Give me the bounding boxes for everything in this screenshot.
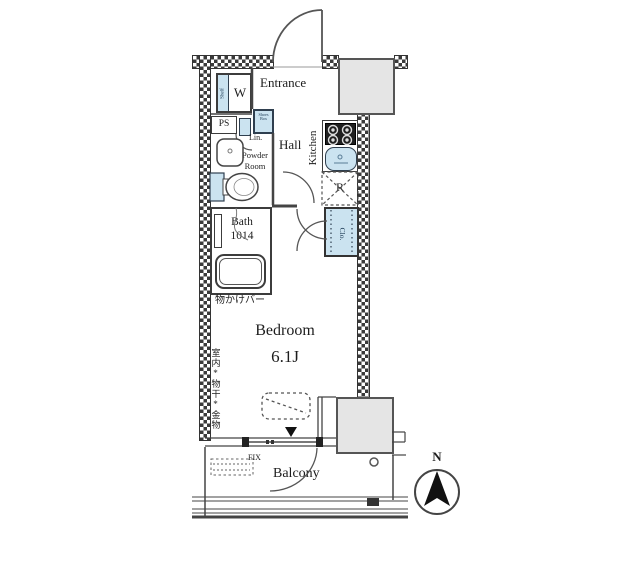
window-marker-triangle	[285, 427, 297, 437]
stove-burners	[329, 126, 352, 145]
closet-rail-lines	[331, 210, 352, 255]
balcony-equipment-outline	[211, 459, 253, 475]
powder-door-arc	[283, 172, 314, 203]
balcony-wall-cap	[367, 498, 379, 506]
shower-hose-line	[234, 208, 248, 240]
bedroom-window	[205, 437, 336, 447]
toilet	[210, 173, 258, 201]
balcony-door-arc	[270, 448, 317, 491]
compass-icon	[415, 470, 459, 514]
washbasin	[217, 139, 243, 166]
balcony-drain	[370, 458, 378, 466]
plan-linework	[0, 0, 640, 569]
drying-hardware-outline	[262, 393, 310, 419]
refrigerator-space	[322, 172, 358, 205]
bedroom-folding-door	[297, 209, 327, 251]
sink-details	[334, 155, 348, 163]
entrance-door-arc	[273, 10, 322, 67]
floor-plan: Shelf W PS Shoes Box Lin. Entrance Hall …	[0, 0, 640, 569]
interior-walls	[211, 68, 336, 447]
